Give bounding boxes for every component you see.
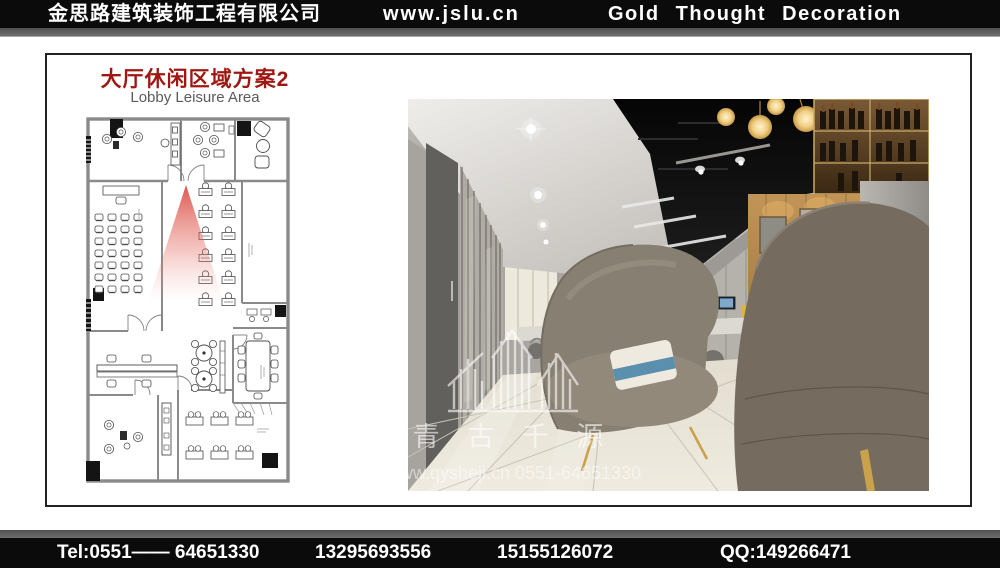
- watermark-contact: www.qysheji.cn 0551-64651330: [408, 463, 641, 483]
- lobby-render-photo: 青 古 千 源 www.qysheji.cn 0551-64651330: [408, 99, 929, 491]
- page-subtitle: Lobby Leisure Area: [95, 89, 295, 106]
- water-counter: [162, 403, 171, 455]
- slide-frame: 大厅休闲区域方案2 Lobby Leisure Area: [45, 53, 972, 507]
- entrance-direction-arrow: [148, 185, 224, 303]
- website-url: www.jslu.cn: [383, 0, 520, 28]
- company-name: 金思路建筑装饰工程有限公司: [48, 0, 321, 28]
- wine-rack: [814, 99, 929, 194]
- footer-mobile-1: 13295693556: [315, 538, 431, 568]
- footer-mobile-2: 15155126072: [497, 538, 613, 568]
- round-tables: [191, 340, 225, 393]
- company-tagline: Gold Thought Decoration: [608, 0, 902, 28]
- footer-telephone: Tel:0551—— 64651330: [57, 538, 259, 568]
- header-stripe: [0, 28, 1000, 37]
- footer-qq: QQ:149266471: [720, 538, 851, 568]
- watermark-name: 青 古 千 源: [413, 422, 614, 452]
- header-bar: 金思路建筑装饰工程有限公司 www.jslu.cn Gold Thought D…: [0, 0, 1000, 28]
- footer-bar: Tel:0551—— 64651330 13295693556 15155126…: [0, 538, 1000, 568]
- lounge-room: [104, 420, 142, 453]
- reception-desk: [97, 355, 177, 387]
- floor-plan: [83, 113, 295, 493]
- conference-table: [238, 333, 278, 399]
- training-seats: [95, 186, 142, 293]
